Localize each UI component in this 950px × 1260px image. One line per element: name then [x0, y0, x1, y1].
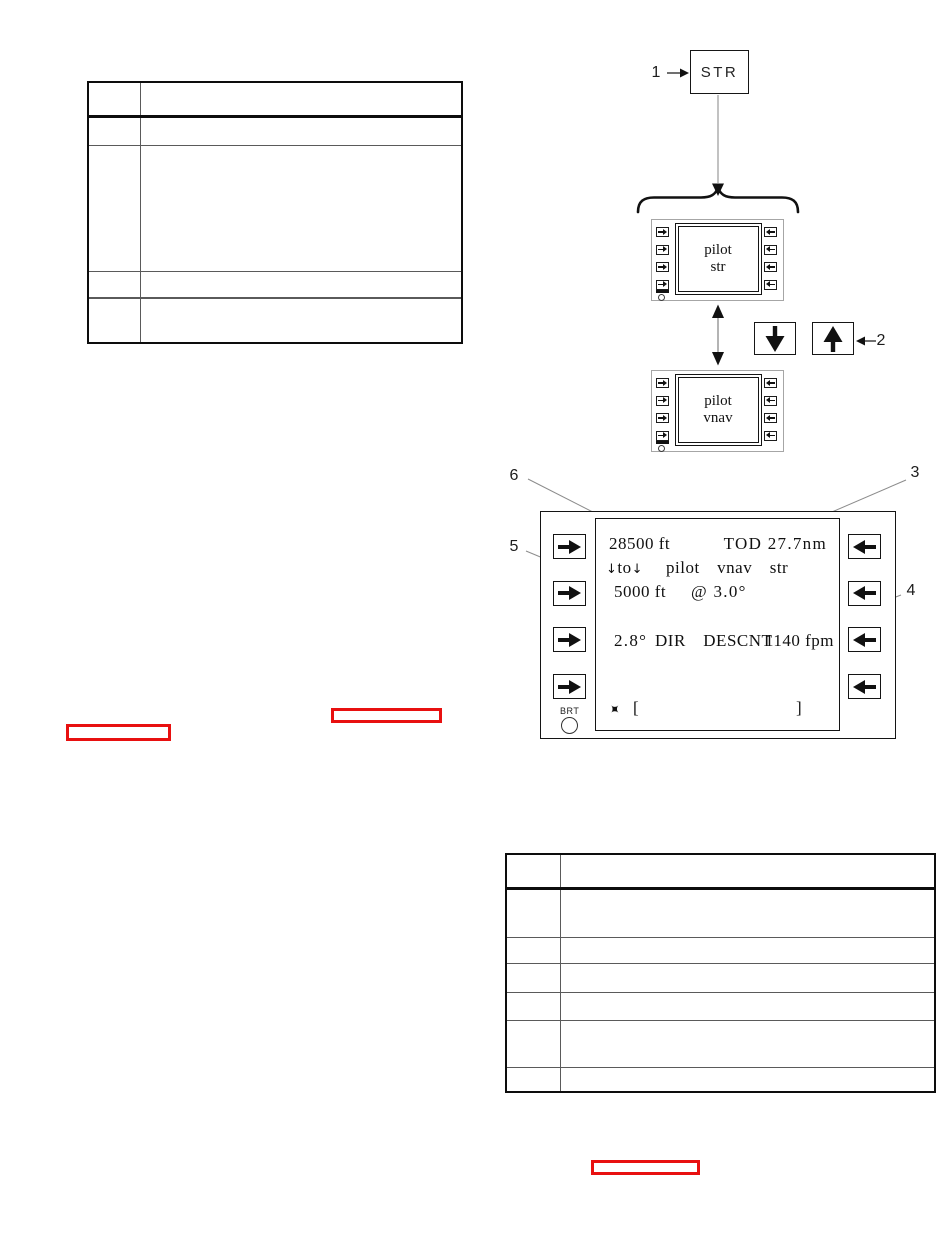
line-select-key: [656, 396, 669, 406]
line-select-key: [764, 413, 777, 423]
right-arrow-icon: [658, 264, 667, 271]
cdu-display: BRT 28500 ft TOD 27.7nm ↓to↓ pilot vnav …: [540, 511, 896, 739]
left-arrow-icon: [766, 246, 775, 253]
down-arrow-glyph: ↓: [606, 562, 617, 577]
right-arrow-icon: [658, 380, 667, 387]
right-arrow-icon: [658, 246, 667, 253]
double-arrow-up-head: [712, 305, 724, 319]
down-arrow-glyph: ↓: [632, 562, 643, 577]
left-arrow-icon: [853, 680, 876, 694]
double-arrow-down-head: [712, 352, 724, 366]
str-key-box: STR: [690, 50, 749, 94]
brt-knob-icon: [658, 445, 665, 452]
left-arrow-icon: [766, 397, 775, 404]
descent-mode: DIR DESCNT: [655, 631, 772, 651]
left-arrow-icon: [766, 281, 775, 288]
left-arrow-icon: [766, 415, 775, 422]
document-page: 1 2 3 4 5 6 STR pilot str: [0, 0, 950, 1260]
line-select-key: [553, 534, 586, 559]
bracket-open: [: [633, 698, 639, 718]
line-select-key: [764, 378, 777, 388]
cdu-screen: 28500 ft TOD 27.7nm ↓to↓ pilot vnav str …: [595, 518, 840, 731]
left-arrow-icon: [853, 540, 876, 554]
flight-path-angle: @ 3.0°: [691, 582, 747, 602]
page-down-key: [754, 322, 796, 355]
callout-label-4: 4: [907, 582, 916, 600]
mini-screen-line-2: str: [711, 259, 726, 276]
right-arrow-icon: [658, 281, 667, 288]
up-arrow-icon: [820, 326, 846, 352]
mini-screen: pilot vnav: [675, 374, 762, 446]
mini-cdu-pilot-vnav: pilot vnav: [651, 370, 784, 452]
right-arrow-icon: [558, 633, 581, 647]
callout-label-1: 1: [652, 64, 661, 82]
callout-label-2: 2: [877, 332, 886, 350]
descent-angle: 2.8°: [614, 631, 647, 651]
brt-knob-icon: [658, 294, 665, 301]
left-arrow-icon: [766, 432, 775, 439]
right-arrow-icon: [558, 540, 581, 554]
brt-bar: [656, 441, 669, 444]
callout-2-arrowhead: [856, 337, 865, 346]
callout-label-6: 6: [510, 467, 519, 485]
right-arrow-icon: [658, 229, 667, 236]
line-select-key: [656, 262, 669, 272]
line-select-key: [553, 581, 586, 606]
brt-bar: [656, 290, 669, 293]
line-select-key: [553, 674, 586, 699]
line-select-key: [553, 627, 586, 652]
right-arrow-icon: [658, 397, 667, 404]
line-select-key: [656, 413, 669, 423]
line-select-key: [764, 227, 777, 237]
callout-label-3: 3: [911, 464, 920, 482]
down-arrow-icon: [762, 326, 788, 352]
brt-knob-icon: [561, 717, 578, 734]
page-up-key: [812, 322, 854, 355]
bracket-close: ]: [796, 698, 802, 718]
mini-cdu-pilot-str: pilot str: [651, 219, 784, 301]
line-select-key: [656, 280, 669, 290]
left-arrow-icon: [853, 633, 876, 647]
right-arrow-icon: [658, 415, 667, 422]
line-select-key: [656, 431, 669, 441]
str-key-label: STR: [701, 64, 739, 81]
mini-screen-line-2: vnav: [703, 410, 732, 427]
mini-screen: pilot str: [675, 223, 762, 295]
left-arrow-icon: [766, 229, 775, 236]
left-arrow-icon: [766, 380, 775, 387]
left-arrow-icon: [853, 586, 876, 600]
line-select-key: [848, 534, 881, 559]
line-select-key: [764, 262, 777, 272]
line-select-key: [656, 227, 669, 237]
line-select-key: [656, 245, 669, 255]
mode-labels: pilot vnav str: [666, 558, 788, 578]
line-select-key: [764, 280, 777, 290]
line-select-key: [656, 378, 669, 388]
callout-1-arrowhead: [680, 69, 689, 78]
to-line: ↓to↓: [606, 558, 643, 578]
line-select-key: [764, 396, 777, 406]
descent-rate: 1140 fpm: [765, 631, 834, 651]
left-arrow-icon: [766, 264, 775, 271]
current-altitude: 28500 ft: [609, 534, 670, 554]
brt-label: BRT: [560, 706, 579, 716]
right-arrow-icon: [658, 432, 667, 439]
line-select-key: [848, 674, 881, 699]
line-select-key: [848, 627, 881, 652]
callout-label-5: 5: [510, 538, 519, 556]
right-arrow-icon: [558, 586, 581, 600]
target-altitude: 5000 ft: [614, 582, 666, 602]
right-arrow-icon: [558, 680, 581, 694]
mini-screen-line-1: pilot: [704, 242, 732, 259]
aircraft-symbol-icon: ✦: [608, 699, 620, 719]
line-select-key: [764, 245, 777, 255]
mini-screen-line-1: pilot: [704, 393, 732, 410]
tod-distance: TOD 27.7nm: [724, 534, 827, 554]
line-select-key: [848, 581, 881, 606]
line-select-key: [764, 431, 777, 441]
to-word: to: [617, 558, 631, 577]
